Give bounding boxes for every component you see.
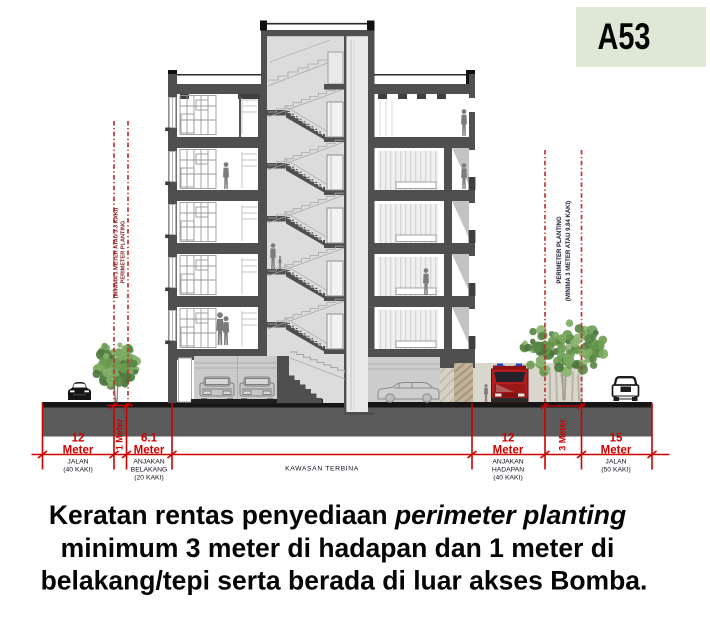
svg-text:Meter: Meter [63,445,94,457]
svg-text:A53: A53 [598,17,651,58]
svg-text:12: 12 [72,433,85,445]
svg-text:KAWASAN TERBINA: KAWASAN TERBINA [285,466,359,473]
svg-text:PERIMETER PLANTING: PERIMETER PLANTING [557,216,563,284]
svg-text:JALAN: JALAN [605,459,626,466]
svg-text:6.1: 6.1 [141,433,158,445]
svg-text:belakang/tepi serta berada di: belakang/tepi serta berada di luar akses… [41,566,648,596]
svg-text:(40 KAKI): (40 KAKI) [493,475,522,482]
svg-text:BELAKANG: BELAKANG [131,467,168,474]
svg-text:ANJAKAN: ANJAKAN [492,459,523,466]
svg-text:(40 KAKI): (40 KAKI) [63,467,92,474]
svg-text:JALAN: JALAN [67,459,88,466]
svg-text:ANJAKAN: ANJAKAN [133,459,164,466]
svg-text:(20 KAKI): (20 KAKI) [134,475,163,482]
svg-text:Meter: Meter [601,445,632,457]
svg-text:(MINIMA 3 METER ATAU 9.84 KAKI: (MINIMA 3 METER ATAU 9.84 KAKI) [566,201,572,301]
svg-text:Keratan rentas penyediaan peri: Keratan rentas penyediaan perimeter plan… [49,500,626,530]
svg-text:15: 15 [610,433,623,445]
svg-text:3 Meter: 3 Meter [558,419,568,451]
svg-text:(MINIMA 1 METER ATAU 3.3 KAKI): (MINIMA 1 METER ATAU 3.3 KAKI) [114,208,120,299]
svg-text:HADAPAN: HADAPAN [492,467,524,474]
svg-text:Meter: Meter [134,445,165,457]
svg-text:PERIMETER PLANTING: PERIMETER PLANTING [121,221,127,284]
svg-text:1 Meter: 1 Meter [115,418,125,450]
svg-text:12: 12 [502,433,515,445]
svg-text:minimum 3 meter di hadapan dan: minimum 3 meter di hadapan dan 1 meter d… [61,533,615,563]
svg-text:Meter: Meter [493,445,524,457]
svg-text:(50 KAKI): (50 KAKI) [601,467,630,474]
